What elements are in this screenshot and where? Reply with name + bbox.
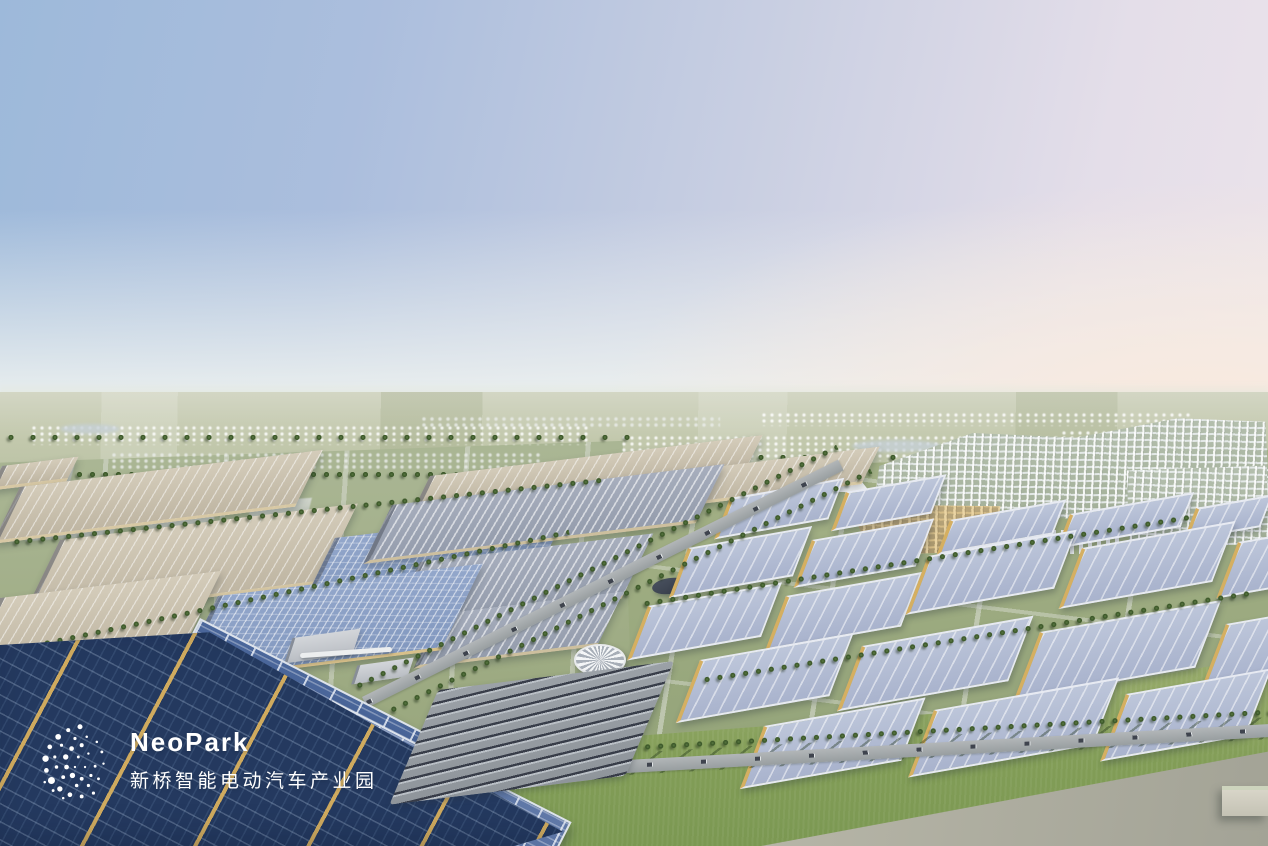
brand-name: NeoPark xyxy=(130,728,378,757)
neopark-dot-cluster-logo-icon xyxy=(38,720,122,804)
office-slab-building xyxy=(1222,786,1268,816)
brand-subtitle: 新桥智能电动汽车产业园 xyxy=(130,766,378,793)
distant-pond xyxy=(60,424,120,434)
neopark-aerial-rendering: NeoPark 新桥智能电动汽车产业园 xyxy=(0,0,1268,846)
distant-town-band xyxy=(760,412,1190,426)
distant-town-band xyxy=(420,416,720,428)
sky-gradient xyxy=(0,0,1268,402)
brand-lockup: NeoPark 新桥智能电动汽车产业园 xyxy=(130,728,378,793)
